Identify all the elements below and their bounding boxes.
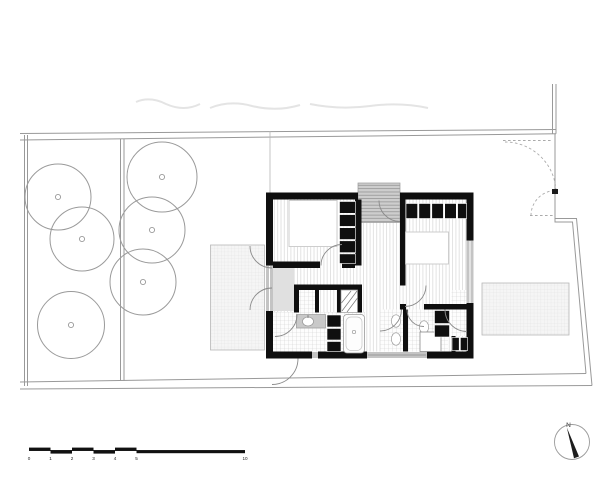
wardrobe-bedroom2 [406, 204, 467, 219]
scale-label: 0 [28, 456, 31, 461]
trees [25, 142, 197, 359]
scale-label: 3 [92, 456, 95, 461]
faint-context-marks [136, 99, 428, 108]
compass-needle [567, 428, 579, 459]
gate-swings [503, 141, 556, 216]
sink-basin [303, 317, 314, 326]
scale-label: 2 [71, 456, 74, 461]
toilet [391, 315, 400, 327]
wardrobe-bedroom1 [340, 202, 356, 264]
floor-plan-canvas: 01234510 N [0, 0, 600, 486]
scale-label: 5 [135, 456, 138, 461]
small-tiled-room [299, 290, 315, 313]
tree-trunk [149, 227, 154, 232]
bed-1 [289, 201, 337, 247]
scale-label: 4 [114, 456, 117, 461]
scale-label: 1 [49, 456, 52, 461]
scale-bar-labels: 01234510 [28, 456, 248, 461]
understair-storage [341, 290, 358, 313]
right-terrace [482, 283, 569, 335]
shower-niche-floor [452, 290, 467, 336]
tree-trunk [79, 236, 84, 241]
entry-vestibule [273, 266, 294, 311]
tree-trunk [68, 322, 73, 327]
gate-post [552, 189, 558, 194]
house [250, 183, 474, 385]
rear-door-swing [272, 359, 298, 385]
footpath [121, 139, 125, 381]
tree-trunk [159, 174, 164, 179]
bed-2 [406, 232, 449, 264]
tree-trunk [55, 194, 60, 199]
north-arrow: N [555, 422, 590, 460]
bidet [391, 333, 400, 345]
bath-cabinet [327, 315, 341, 352]
scale-bar: 01234510 [28, 448, 248, 461]
north-label: N [566, 422, 571, 429]
toilet-2 [419, 321, 428, 333]
scale-label: 10 [242, 456, 248, 461]
left-terrace [211, 245, 265, 350]
tree-trunk [140, 279, 145, 284]
